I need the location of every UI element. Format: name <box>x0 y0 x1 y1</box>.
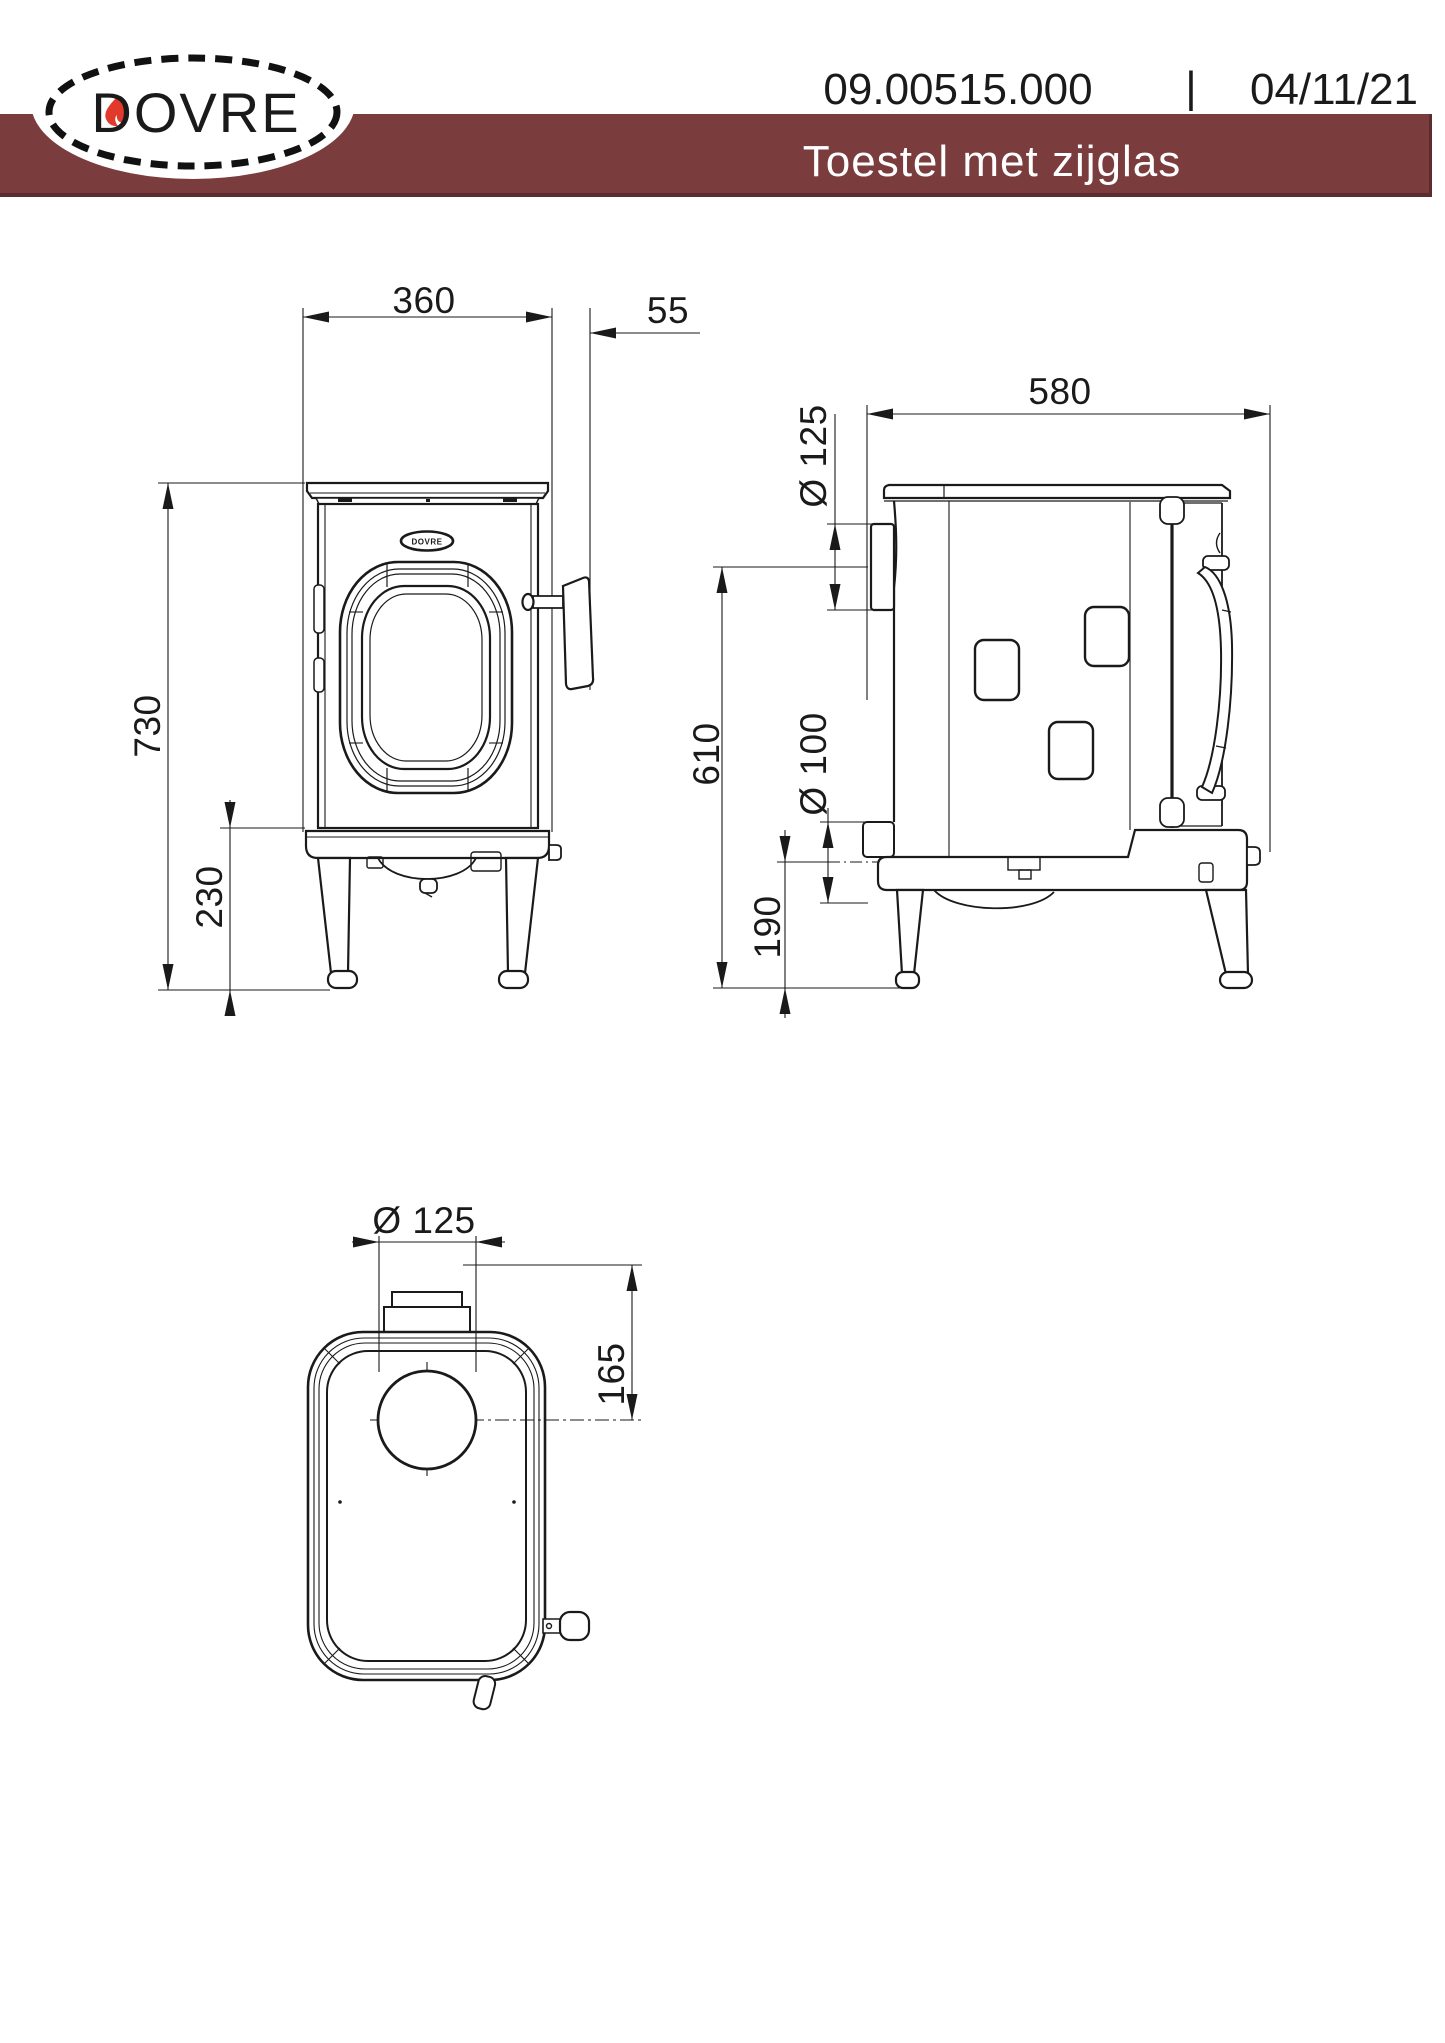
side-dimensions: 580 Ø 125 610 Ø 100 <box>686 371 1270 1018</box>
dovre-logo: DOVRE <box>31 27 355 179</box>
dim-front-base-height: 230 <box>189 865 230 928</box>
dim-side-air-diameter: Ø 100 <box>793 712 834 815</box>
top-flue-plate <box>384 1307 470 1332</box>
side-door-handle <box>1197 556 1232 800</box>
side-ash-lip <box>1247 847 1260 865</box>
door-glass <box>370 594 482 761</box>
front-leg-right <box>506 858 538 973</box>
technical-drawing: Toestel met zijglas 09.00515.000 | 04/11… <box>0 0 1445 2043</box>
dim-front-handle: 55 <box>647 290 689 331</box>
side-glass-windows <box>975 607 1129 779</box>
dim-top-flue-offset: 165 <box>591 1342 632 1405</box>
air-inlet-stub <box>863 822 894 857</box>
top-flue-plate-inner <box>392 1292 462 1307</box>
side-view: 580 Ø 125 610 Ø 100 <box>686 371 1270 1018</box>
dim-front-height: 730 <box>127 694 168 757</box>
door-hinge-lower <box>314 658 324 692</box>
dim-top-flue-diameter: Ø 125 <box>372 1200 475 1241</box>
header: Toestel met zijglas 09.00515.000 | 04/11… <box>0 27 1432 197</box>
front-stove-outline: DOVRE <box>306 483 593 988</box>
top-stove-outline <box>308 1292 589 1711</box>
front-logo-badge: DOVRE <box>401 532 453 551</box>
dim-side-flue-height: 610 <box>686 722 727 785</box>
front-logo-text: DOVRE <box>412 538 443 547</box>
top-handle-knob <box>543 1612 589 1640</box>
flue-collar <box>871 524 894 610</box>
side-stove-outline <box>863 485 1260 988</box>
side-leg-rear <box>897 890 923 974</box>
drawing-sheet: Toestel met zijglas 09.00515.000 | 04/11… <box>0 0 1445 2043</box>
front-dimensions: 360 55 730 230 <box>127 280 700 1016</box>
banner-title: Toestel met zijglas <box>803 137 1181 186</box>
side-hinge-lower <box>1160 798 1184 827</box>
side-base <box>878 830 1260 988</box>
ash-lip <box>549 845 561 860</box>
banner-bottom-edge <box>0 193 1432 197</box>
dim-side-air-height: 190 <box>747 895 788 958</box>
front-leg-left <box>318 858 350 973</box>
front-view: 360 55 730 230 <box>127 280 700 1016</box>
side-leg-front <box>1206 890 1248 974</box>
banner-right-edge <box>1429 114 1432 197</box>
door-glass-frame <box>362 586 490 769</box>
dim-side-depth: 580 <box>1028 371 1091 412</box>
document-date: 04/11/21 <box>1250 65 1418 114</box>
front-base <box>306 831 561 988</box>
front-door-handle <box>523 577 594 689</box>
document-number: 09.00515.000 <box>823 65 1092 114</box>
side-hinge-upper <box>1160 497 1184 524</box>
top-flue-opening <box>378 1371 476 1469</box>
top-view: Ø 125 165 <box>308 1200 644 1711</box>
dim-front-width: 360 <box>392 280 455 321</box>
dim-side-flue-diameter: Ø 125 <box>793 404 834 507</box>
logo-text: DOVRE <box>91 81 300 144</box>
header-separator: | <box>1185 63 1196 112</box>
front-door <box>340 562 512 793</box>
door-hinge-upper <box>314 585 324 633</box>
